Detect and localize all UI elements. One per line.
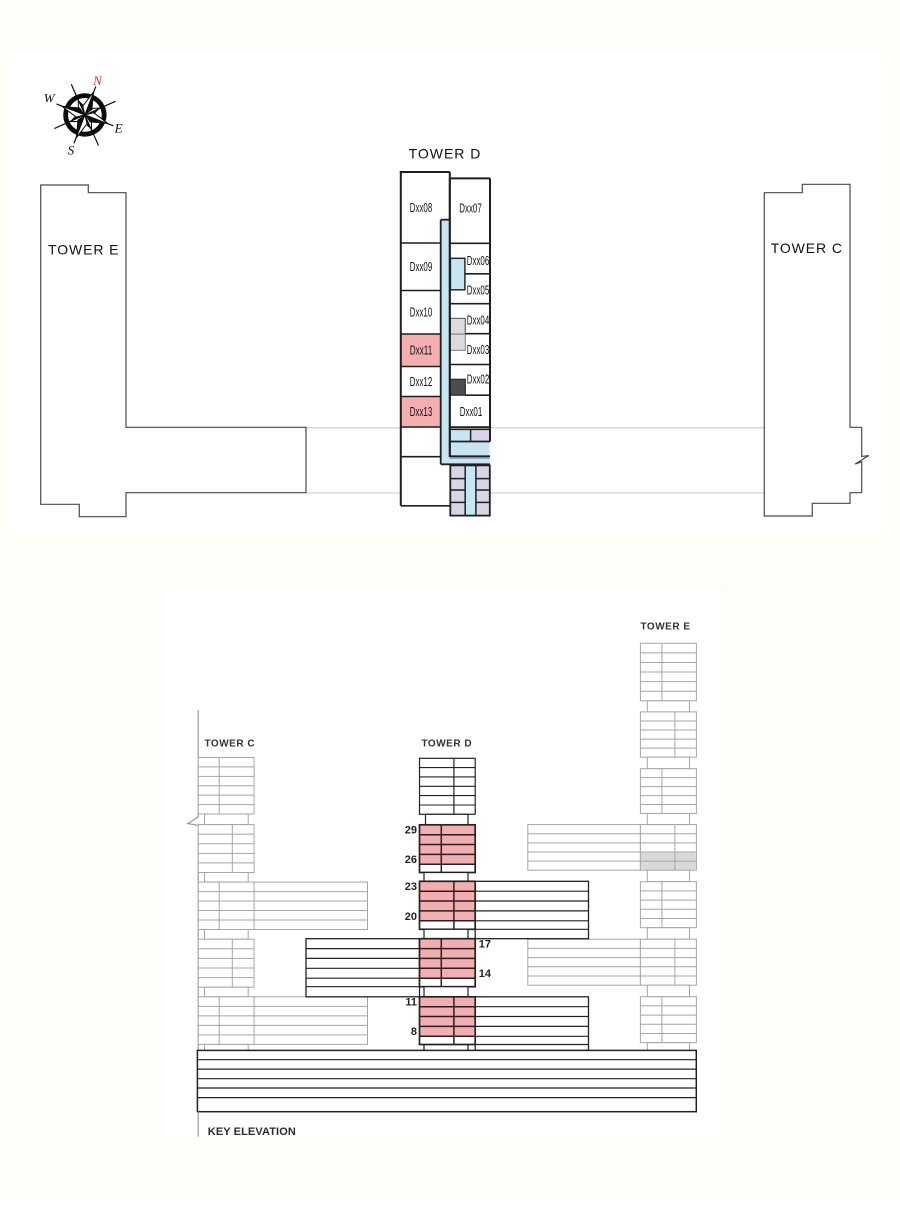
svg-text:Dxx08: Dxx08 <box>410 201 433 215</box>
svg-text:29: 29 <box>405 825 417 837</box>
svg-text:E: E <box>114 120 123 135</box>
svg-text:20: 20 <box>405 911 417 923</box>
svg-text:Dxx07: Dxx07 <box>459 202 482 216</box>
svg-text:Dxx02: Dxx02 <box>467 373 490 387</box>
svg-text:11: 11 <box>405 997 417 1009</box>
svg-text:W: W <box>44 91 56 106</box>
svg-text:Dxx01: Dxx01 <box>460 405 483 419</box>
svg-text:Dxx06: Dxx06 <box>467 254 490 268</box>
svg-text:Dxx10: Dxx10 <box>410 306 433 320</box>
svg-text:KEY ELEVATION: KEY ELEVATION <box>208 1126 296 1138</box>
svg-text:S: S <box>68 143 75 158</box>
svg-text:TOWER E: TOWER E <box>641 622 691 633</box>
svg-text:14: 14 <box>479 968 492 980</box>
svg-text:TOWER C: TOWER C <box>771 240 843 256</box>
svg-text:8: 8 <box>411 1026 417 1038</box>
svg-text:N: N <box>92 73 103 88</box>
svg-text:Dxx03: Dxx03 <box>467 343 490 357</box>
svg-text:TOWER E: TOWER E <box>48 242 119 258</box>
svg-text:Dxx12: Dxx12 <box>410 375 433 389</box>
svg-text:23: 23 <box>405 881 417 893</box>
svg-text:Dxx09: Dxx09 <box>410 260 433 274</box>
svg-text:26: 26 <box>405 854 417 866</box>
svg-text:Dxx13: Dxx13 <box>410 405 433 419</box>
svg-text:TOWER C: TOWER C <box>205 739 256 750</box>
svg-text:TOWER D: TOWER D <box>409 146 482 162</box>
svg-text:Dxx04: Dxx04 <box>467 314 490 328</box>
svg-text:Dxx11: Dxx11 <box>410 344 433 358</box>
svg-text:17: 17 <box>479 939 491 951</box>
svg-text:Dxx05: Dxx05 <box>467 284 490 298</box>
svg-text:TOWER D: TOWER D <box>422 739 473 750</box>
